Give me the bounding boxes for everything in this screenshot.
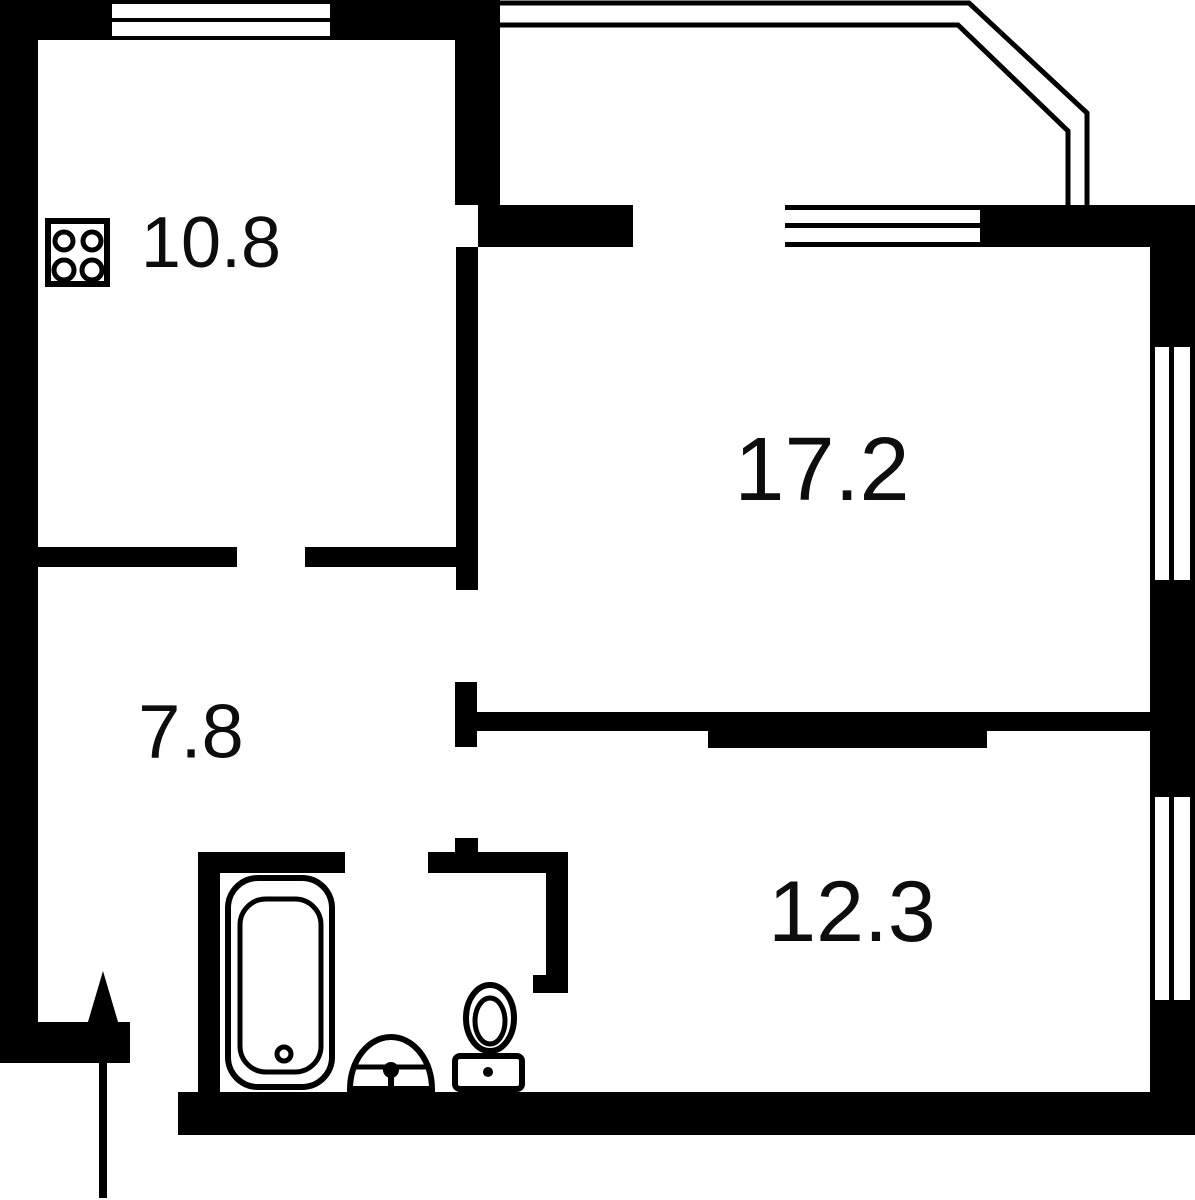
walls <box>0 0 1195 1135</box>
room-label-living-room: 17.2 <box>734 420 909 520</box>
balcony-railing-icon <box>500 3 1087 205</box>
room-label-hallway: 7.8 <box>138 690 244 775</box>
window-icon <box>112 0 330 40</box>
toilet-icon <box>455 985 522 1089</box>
stove-icon <box>48 221 107 284</box>
wall-kitchen-right-lower <box>456 247 478 590</box>
room-labels: 10.8 17.2 7.8 12.3 <box>138 203 936 960</box>
wall-bath-right <box>546 873 568 975</box>
room-label-kitchen: 10.8 <box>141 203 281 283</box>
wall-left-outer <box>0 0 38 1063</box>
wall-kitchen-right-upper <box>455 0 500 205</box>
window-icon <box>1150 347 1195 580</box>
window-icon <box>1150 797 1195 1000</box>
entrance-arrow-icon <box>85 971 121 1198</box>
wall-living-top-left <box>478 205 633 247</box>
wall-divider-thick <box>708 712 987 748</box>
wall-bottom <box>178 1092 1195 1135</box>
window-icon <box>785 205 980 247</box>
floor-plan-canvas: 10.8 17.2 7.8 12.3 <box>0 0 1195 1200</box>
floor-plan: 10.8 17.2 7.8 12.3 <box>0 0 1195 1200</box>
wall-kitchen-bottom-left <box>38 547 237 567</box>
wall-bath-right-notch <box>533 975 568 993</box>
windows <box>112 0 1195 1000</box>
room-label-bedroom: 12.3 <box>768 864 935 960</box>
wall-bath-top-left <box>198 852 345 873</box>
sink-icon <box>350 1037 432 1090</box>
bathtub-icon <box>228 878 332 1087</box>
wall-bath-stub <box>455 838 478 852</box>
wall-kitchen-bottom-right <box>305 547 460 567</box>
wall-bath-left <box>198 852 220 1092</box>
wall-bath-top-right <box>428 852 568 873</box>
